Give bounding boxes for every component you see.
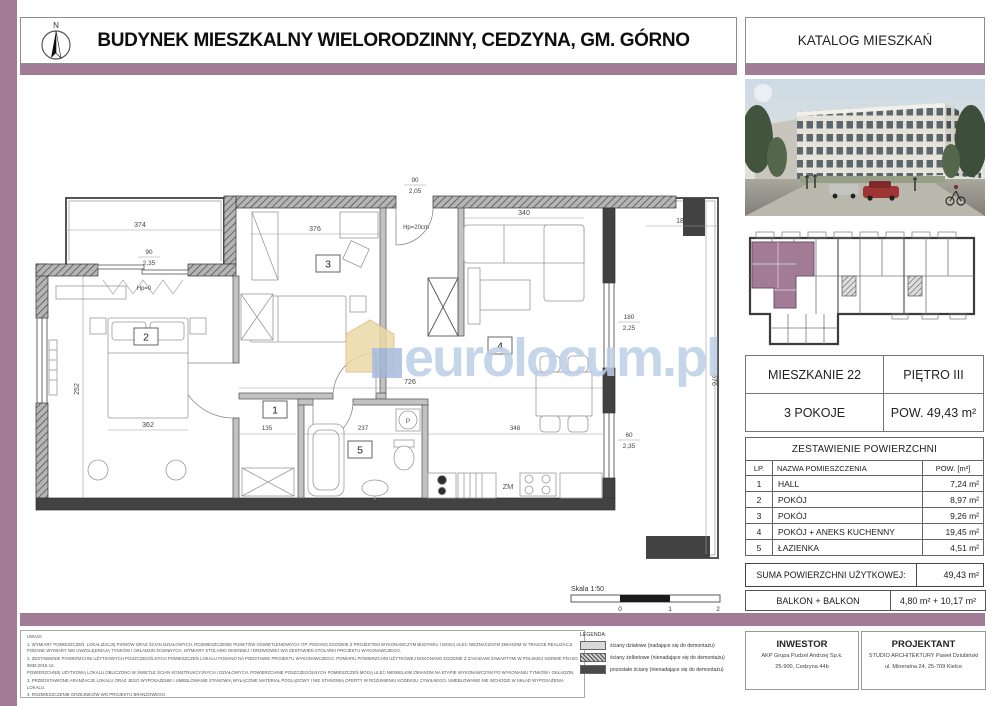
- note-line: 3. PRZEDSTAWIONE ARANŻACJE LOKALU ORAZ J…: [27, 678, 578, 691]
- svg-text:Hp=0: Hp=0: [137, 286, 152, 292]
- investor-title: INWESTOR: [746, 639, 858, 650]
- svg-text:180: 180: [676, 218, 688, 225]
- page-title: BUDYNEK MIESZKALNY WIELORODZINNY, CEDZYN…: [91, 30, 736, 52]
- investor-name: AKP Grupa Pudzel Andrzej Sp.k.: [746, 653, 858, 661]
- catalog-sheet: { "header": { "title": "BUDYNEK MIESZKAL…: [0, 0, 1000, 706]
- footer-accent-bar: [20, 613, 985, 626]
- svg-text:eurolocum.pl: eurolocum.pl: [404, 328, 719, 388]
- note-line: 2. ZESTAWIENIE POWIERZCHNI UŻYTKOWYCH PO…: [27, 656, 578, 669]
- building-render-photo: [745, 79, 985, 216]
- area-breakdown-table: ZESTAWIENIE POWIERZCHNI LP. NAZWA POMIES…: [745, 437, 984, 556]
- watermark: eurolocum.pl: [346, 320, 719, 388]
- left-accent-strip: [0, 0, 17, 706]
- bathroom-sink: [362, 480, 388, 500]
- svg-text:5: 5: [357, 445, 363, 457]
- svg-text:340: 340: [518, 210, 530, 217]
- wall: [646, 536, 710, 558]
- apartment-summary-table: MIESZKANIE 22 PIĘTRO III 3 POKOJE POW. 4…: [745, 355, 984, 432]
- radiator: [49, 340, 57, 395]
- room2-stool: [88, 460, 108, 480]
- watermark-square-icon: [372, 348, 402, 378]
- room2-stool: [166, 460, 186, 480]
- notes-title: UWAGI:: [27, 634, 578, 641]
- svg-text:362: 362: [142, 422, 154, 429]
- toilet: [394, 440, 414, 470]
- room3-chair: [343, 241, 370, 268]
- header-accent-bar: [20, 64, 737, 75]
- svg-text:90: 90: [411, 177, 419, 184]
- table-row: 3 POKÓJ 9,26 m²: [746, 508, 984, 524]
- note-line: POWIERZCHNIĘ UŻYTKOWĄ LOKALU OBLICZONO W…: [27, 670, 578, 677]
- dishwasher-label: ZM: [503, 482, 514, 491]
- table-row: 2 POKÓJ 8,97 m²: [746, 492, 984, 508]
- svg-text:2,05: 2,05: [409, 188, 422, 195]
- svg-text:1: 1: [668, 606, 672, 613]
- balcony-row: BALKON + BALKON 4,80 m² + 10,17 m²: [745, 590, 986, 611]
- catalog-title: KATALOG MIESZKAŃ: [745, 17, 985, 64]
- svg-text:0: 0: [618, 606, 622, 613]
- svg-text:2,35: 2,35: [623, 443, 636, 450]
- legend-title: LEGENDA:: [580, 632, 732, 638]
- total-area-value: 49,43 m²: [916, 564, 983, 586]
- balcony-value: 4,80 m² + 10,17 m²: [890, 591, 985, 610]
- svg-text:1: 1: [272, 405, 278, 417]
- investor-address: 25-900, Cedzyna 44b: [746, 664, 858, 672]
- legend-item: ściany żelbetowe (nienadające się do dem…: [580, 653, 732, 662]
- concrete-wall-swatch: [580, 653, 606, 662]
- apartment-floor: PIĘTRO III: [884, 356, 984, 394]
- svg-text:Skala 1:50: Skala 1:50: [571, 586, 604, 593]
- svg-text:376: 376: [309, 226, 321, 233]
- north-arrow-icon: N: [21, 20, 91, 62]
- hall-wardrobe: [242, 468, 294, 496]
- svg-text:2: 2: [143, 332, 149, 344]
- notes-block: UWAGI: 1. WYMIARY POMIESZCZEŃ, LOKALIZAC…: [20, 630, 585, 698]
- designer-title: PROJEKTANT: [862, 639, 985, 650]
- legend-item: pozostałe ściany (nienadające się do dem…: [580, 665, 732, 674]
- table-row: 1 HALL 7,24 m²: [746, 476, 984, 492]
- designer-address: ul. Mineralna 24, 25-709 Kielce: [862, 664, 985, 672]
- title-block: N BUDYNEK MIESZKALNY WIELORODZINNY, CEDZ…: [20, 17, 737, 64]
- designer-card: PROJEKTANT STUDIO ARCHITEKTURY Paweł Dzi…: [861, 631, 986, 690]
- svg-text:60: 60: [625, 432, 633, 439]
- tv-cabinet: [468, 268, 480, 324]
- hall-closet: [241, 294, 273, 340]
- svg-text:348: 348: [510, 425, 521, 432]
- kitchen-counter: [428, 473, 602, 498]
- note-line: 4. ROZMIESZCZENIE GRZEJNIKÓW WG PROJEKTU…: [27, 692, 578, 698]
- area-table-title: ZESTAWIENIE POWIERZCHNI: [746, 438, 984, 461]
- svg-text:3: 3: [325, 259, 331, 271]
- scale-bar: Skala 1:50 0 1 2: [571, 586, 720, 613]
- coffee-table: [480, 280, 530, 310]
- legend-block: LEGENDA: ściany działowe (nadające się d…: [580, 632, 732, 686]
- room2-dresser: [56, 286, 126, 299]
- wall: [683, 198, 705, 236]
- other-wall-swatch: [580, 665, 606, 674]
- apartment-area: POW. 49,43 m²: [884, 394, 984, 432]
- table-row: 5 ŁAZIENKA 4,51 m²: [746, 540, 984, 556]
- svg-text:2,35: 2,35: [143, 260, 156, 267]
- floor-overview-plan: [742, 218, 987, 350]
- svg-text:90: 90: [145, 249, 153, 256]
- svg-text:252: 252: [74, 383, 81, 395]
- col-name: NAZWA POMIESZCZENIA: [773, 461, 923, 476]
- svg-text:135: 135: [262, 425, 273, 432]
- total-area-row: SUMA POWIERZCHNI UŻYTKOWEJ: 49,43 m²: [745, 563, 984, 587]
- bathtub: [308, 424, 344, 496]
- catalog-accent-bar: [745, 64, 985, 75]
- partition-wall-swatch: [580, 641, 606, 650]
- washer-label: P: [406, 418, 410, 425]
- svg-text:180: 180: [624, 314, 635, 321]
- svg-text:2: 2: [716, 606, 720, 613]
- apartment-number: MIESZKANIE 22: [746, 356, 884, 394]
- total-area-label: SUMA POWIERZCHNI UŻYTKOWEJ:: [746, 564, 916, 586]
- svg-text:N: N: [53, 21, 59, 30]
- col-area: POW. [m²]: [923, 461, 984, 476]
- svg-text:374: 374: [134, 222, 146, 229]
- note-line: 1. WYMIARY POMIESZCZEŃ, LOKALIZACJĘ PION…: [27, 642, 578, 655]
- investor-card: INWESTOR AKP Grupa Pudzel Andrzej Sp.k. …: [745, 631, 859, 690]
- svg-text:237: 237: [358, 425, 369, 432]
- table-row: 4 POKÓJ + ANEKS KUCHENNY 19,45 m²: [746, 524, 984, 540]
- room3-wardrobe: [252, 212, 278, 280]
- svg-text:Hp=20cm: Hp=20cm: [403, 225, 429, 231]
- designer-name: STUDIO ARCHITEKTURY Paweł Dziubiński: [862, 653, 985, 661]
- legend-item: ściany działowe (nadające się do demonta…: [580, 641, 732, 650]
- floor-plan: 374 376 340 180 576 252 362 726 135 237 …: [28, 168, 733, 613]
- balcony-label: BALKON + BALKON: [746, 591, 890, 610]
- apartment-rooms: 3 POKOJE: [746, 394, 884, 432]
- col-lp: LP.: [746, 461, 773, 476]
